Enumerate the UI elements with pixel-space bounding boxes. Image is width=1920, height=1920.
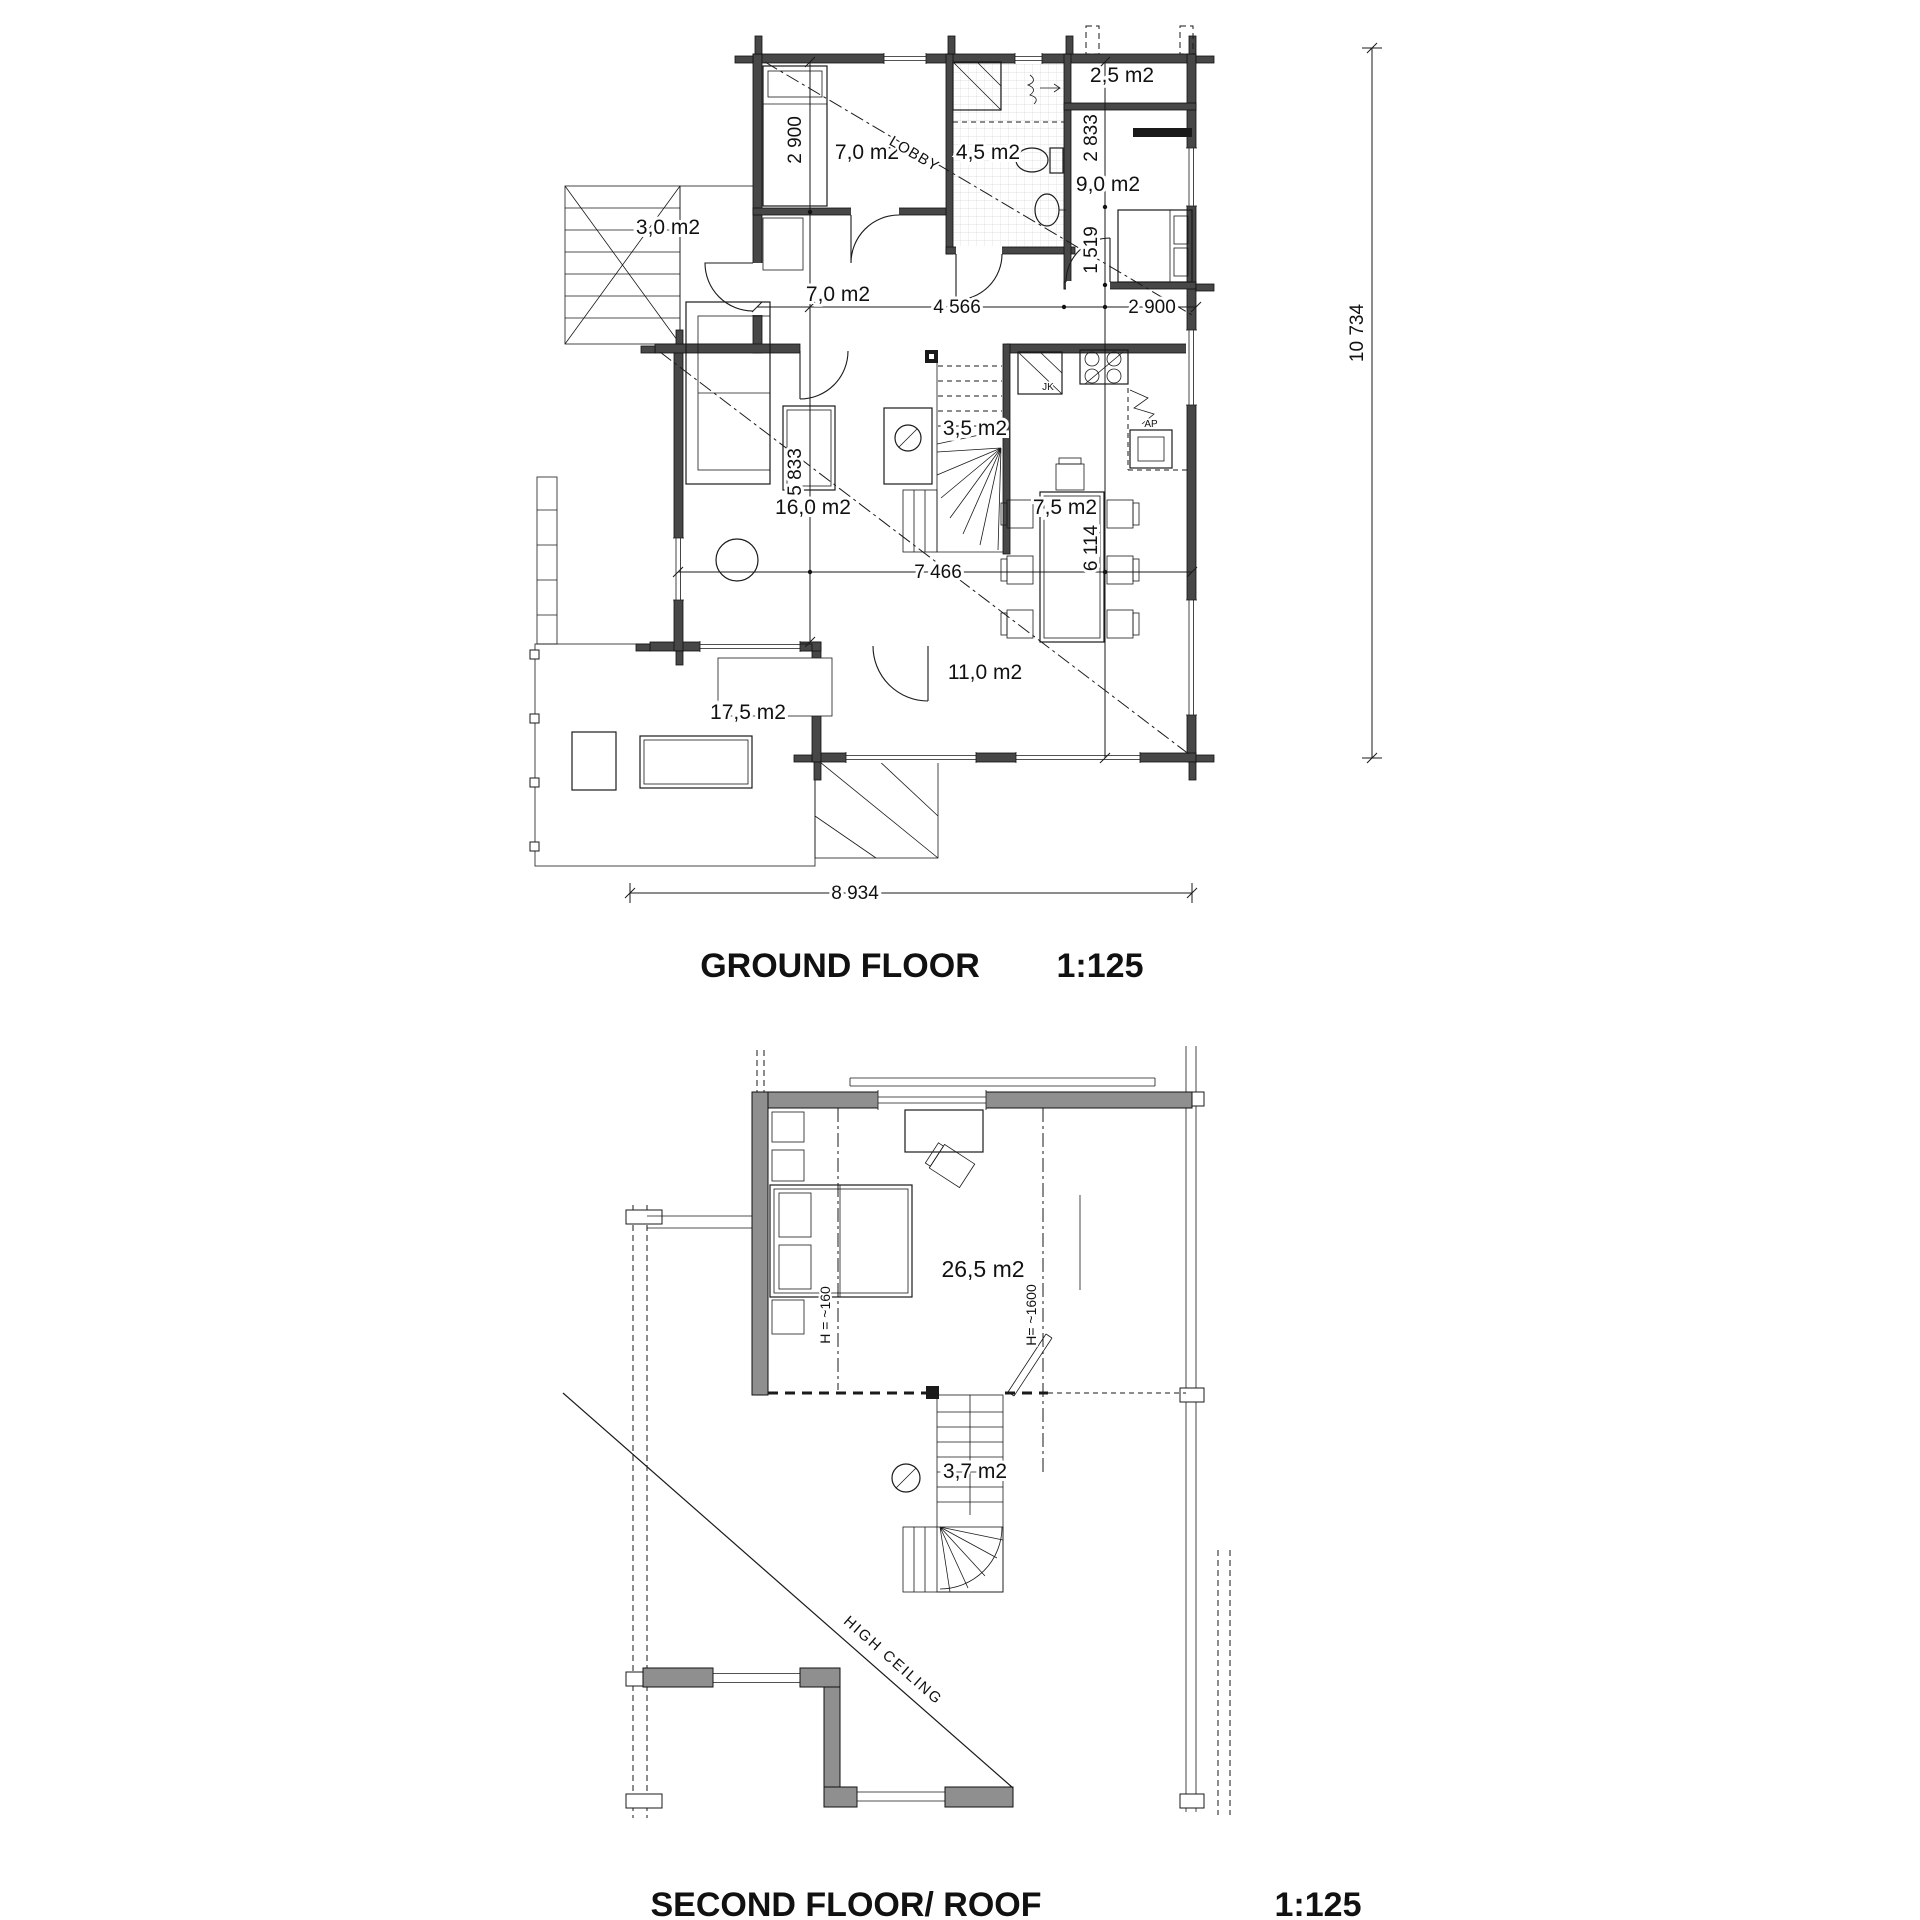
second-floor-desk (905, 1110, 983, 1188)
deck-furniture (572, 658, 832, 790)
height-note-left: H = ~160 (817, 1286, 833, 1344)
entrance-door (705, 263, 753, 311)
bedroom1-door (851, 215, 899, 263)
high-ceiling-line (563, 1393, 1013, 1788)
hall-living-door (800, 351, 848, 399)
dim-kitchen-height: 6 114 (1081, 525, 1102, 572)
dim-total-height: 10 734 (1347, 304, 1368, 363)
dim-total-width: 8 934 (831, 883, 879, 904)
dim-lobby-height: 1 519 (1081, 226, 1102, 274)
second-floor-stairs (892, 1395, 1003, 1592)
fridge-label: JK (1042, 382, 1054, 393)
floor-plan-sheet: 2 900 5 833 4 566 2 900 2 833 1 519 6 11… (0, 0, 1920, 1920)
ground-floor-scale: 1:125 (1057, 947, 1144, 985)
height-note-right: H= ~1600 (1023, 1284, 1039, 1346)
right-roof-edge (1080, 1046, 1230, 1815)
ground-floor-doors (705, 215, 1110, 701)
roof-edge-top (850, 1078, 1155, 1086)
bathroom-area-label: 4,5 m2 (956, 141, 1020, 164)
deck-steps (815, 758, 938, 858)
dim-living-width: 7 466 (914, 562, 962, 583)
left-post-column (626, 1205, 752, 1818)
terrace-area-label: 17,5 m2 (710, 701, 786, 724)
bedroom2-area-label: 9,0 m2 (1076, 173, 1140, 196)
closet-area-label: 2,5 m2 (1090, 64, 1154, 87)
porch-area-label: 3,0 m2 (636, 216, 700, 239)
bedroom2-bed (1118, 210, 1192, 282)
dim-bedroom1-height: 2 900 (785, 116, 806, 164)
bathroom-door (956, 254, 1002, 300)
stairs-area-label: 3,5 m2 (943, 417, 1007, 440)
living-plant (716, 539, 758, 581)
fireplace-stove (884, 408, 932, 484)
dim-bedroom2-height: 2 833 (1081, 114, 1102, 162)
hall-area-label: 7,0 m2 (806, 283, 870, 306)
hall-closet (763, 218, 803, 270)
dim-hall-width: 4 566 (933, 297, 981, 318)
floor-plan-drawing: 2 900 5 833 4 566 2 900 2 833 1 519 6 11… (0, 0, 1920, 1920)
second-floor-title: SECOND FLOOR/ ROOF (651, 1886, 1042, 1920)
high-ceiling-label: HIGH CEILING (840, 1613, 946, 1709)
kitchen-fixtures (1018, 350, 1187, 470)
second-floor-labels: 26,5 m2 3,7 m2 H = ~160 H= ~1600 HIGH CE… (817, 1256, 1039, 1708)
ground-floor-room-labels: 7,0 m2 4,5 m2 2,5 m2 9,0 m2 3,0 m2 7,0 m… (636, 64, 1158, 724)
dim-living-height: 5 833 (785, 448, 806, 496)
ground-floor-title: GROUND FLOOR (700, 947, 980, 985)
dining-area-label: 11,0 m2 (948, 661, 1022, 684)
bedroom2-wardrobe (1133, 128, 1192, 137)
ground-floor-stairs (903, 350, 1003, 552)
stairs-area-label-2f: 3,7 m2 (943, 1460, 1007, 1483)
dining-set (1001, 458, 1139, 642)
living-area-label: 16,0 m2 (775, 496, 851, 519)
entrance-porch (565, 186, 755, 344)
dim-bedroom2-width: 2 900 (1128, 297, 1176, 318)
dishwasher-label: AP (1144, 419, 1158, 430)
kitchen-area-label: 7,5 m2 (1033, 496, 1097, 519)
bedroom-area-label-2f: 26,5 m2 (941, 1256, 1024, 1282)
second-floor-bed (770, 1112, 912, 1334)
terrace-door (873, 646, 928, 701)
ground-floor-plan: 2 900 5 833 4 566 2 900 2 833 1 519 6 11… (530, 26, 1382, 985)
second-floor-plan: 26,5 m2 3,7 m2 H = ~160 H= ~1600 HIGH CE… (563, 1046, 1361, 1920)
second-floor-scale: 1:125 (1275, 1886, 1362, 1920)
